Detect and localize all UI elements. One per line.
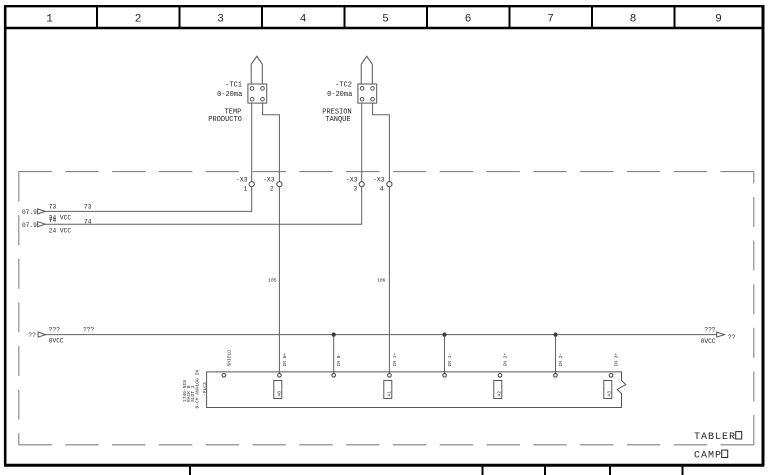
svg-text:???: ??? [49, 327, 60, 334]
svg-text:105: 105 [268, 277, 277, 283]
svg-text:3: 3 [353, 186, 357, 193]
svg-text:IN 2+: IN 2+ [503, 352, 509, 366]
svg-text:TANQUE: TANQUE [325, 116, 350, 124]
svg-text:A2: A2 [496, 391, 502, 397]
svg-text:24 VCC: 24 VCC [49, 227, 72, 234]
svg-text:73: 73 [84, 203, 92, 210]
svg-text:2: 2 [270, 186, 274, 193]
svg-text:106: 106 [377, 277, 386, 283]
svg-text:IN 2-: IN 2- [558, 353, 564, 367]
svg-text:74: 74 [49, 217, 57, 224]
svg-text:4: 4 [380, 186, 384, 193]
svg-text:6: 6 [465, 14, 472, 26]
svg-text:-TC2: -TC2 [335, 81, 352, 89]
svg-text:A0: A0 [276, 391, 282, 397]
svg-text:8-CH ANALOG IN: 8-CH ANALOG IN [194, 370, 200, 409]
svg-text:5: 5 [382, 14, 389, 26]
svg-text:0VCC: 0VCC [701, 338, 716, 345]
svg-text:IN 3+: IN 3+ [614, 352, 620, 366]
svg-text:IN 0-: IN 0- [336, 353, 342, 367]
svg-text:??: ?? [28, 332, 36, 339]
svg-text:A1: A1 [386, 391, 392, 397]
svg-text:CAMP: CAMP [694, 451, 722, 462]
svg-text:-X3: -X3 [236, 177, 248, 184]
svg-text:IN 1-: IN 1- [447, 353, 453, 367]
svg-text:07.9: 07.9 [22, 222, 37, 229]
svg-text:7: 7 [547, 14, 554, 26]
svg-text:74: 74 [84, 219, 92, 226]
svg-text:PRODUCTO: PRODUCTO [208, 116, 242, 124]
svg-text:IN 1+: IN 1+ [392, 352, 398, 366]
svg-text:??: ?? [728, 334, 736, 341]
svg-text:-X3: -X3 [263, 177, 275, 184]
svg-text:A3: A3 [606, 391, 612, 397]
svg-text:3: 3 [217, 14, 224, 26]
svg-text:1: 1 [243, 186, 247, 193]
svg-text:4: 4 [300, 14, 307, 26]
svg-text:0-20ma: 0-20ma [327, 91, 352, 99]
svg-text:-TC1: -TC1 [225, 81, 242, 89]
svg-text:TABLER: TABLER [694, 432, 736, 443]
svg-text:???: ??? [704, 327, 715, 334]
svg-text:73: 73 [49, 203, 57, 210]
svg-text:???: ??? [83, 327, 94, 334]
svg-text:1: 1 [46, 14, 53, 26]
svg-text:IN 0+: IN 0+ [282, 352, 288, 366]
svg-text:9: 9 [715, 14, 722, 26]
svg-text:0VCC: 0VCC [49, 338, 64, 345]
svg-text:-X3: -X3 [346, 177, 358, 184]
svg-text:0-20ma: 0-20ma [217, 91, 242, 99]
svg-text:-X3: -X3 [373, 177, 385, 184]
svg-text:07.9: 07.9 [22, 209, 37, 216]
svg-text:SHIELD: SHIELD [226, 350, 232, 367]
svg-text:-PLC3: -PLC3 [202, 382, 208, 396]
svg-text:2: 2 [135, 14, 142, 26]
svg-text:8: 8 [630, 14, 637, 26]
